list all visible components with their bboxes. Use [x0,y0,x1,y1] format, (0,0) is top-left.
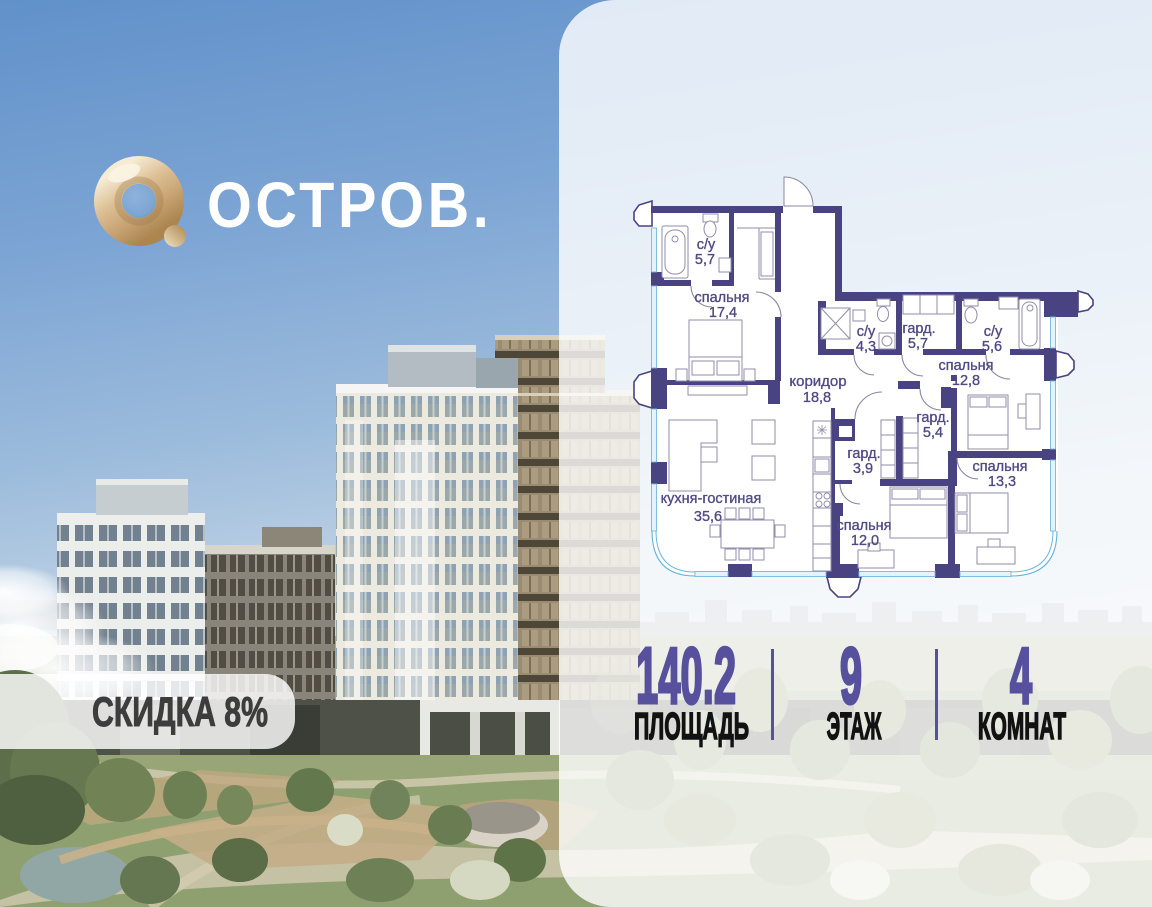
svg-text:5,7: 5,7 [908,336,928,352]
svg-text:4,3: 4,3 [856,339,876,355]
svg-text:13,3: 13,3 [988,474,1016,490]
svg-text:17,4: 17,4 [709,305,737,321]
svg-text:35,6: 35,6 [694,509,722,525]
svg-text:с/у: с/у [984,324,1003,340]
svg-text:5,6: 5,6 [982,339,1002,355]
svg-text:18,8: 18,8 [803,390,831,406]
svg-text:5,7: 5,7 [695,252,715,268]
svg-text:12,0: 12,0 [851,533,879,549]
svg-text:гард.: гард. [902,321,935,337]
svg-text:3,9: 3,9 [853,461,873,477]
svg-text:коридор: коридор [789,373,846,390]
svg-text:спальня: спальня [694,290,749,306]
svg-text:5,4: 5,4 [923,425,943,441]
svg-text:спальня: спальня [836,518,891,534]
svg-text:с/у: с/у [857,324,876,340]
svg-text:гард.: гард. [916,410,949,426]
svg-text:12,8: 12,8 [952,373,980,389]
svg-text:гард.: гард. [847,446,880,462]
svg-text:с/у: с/у [697,237,716,253]
svg-text:кухня-гостиная: кухня-гостиная [661,491,762,507]
svg-text:спальня: спальня [938,358,993,374]
svg-text:спальня: спальня [972,459,1027,475]
